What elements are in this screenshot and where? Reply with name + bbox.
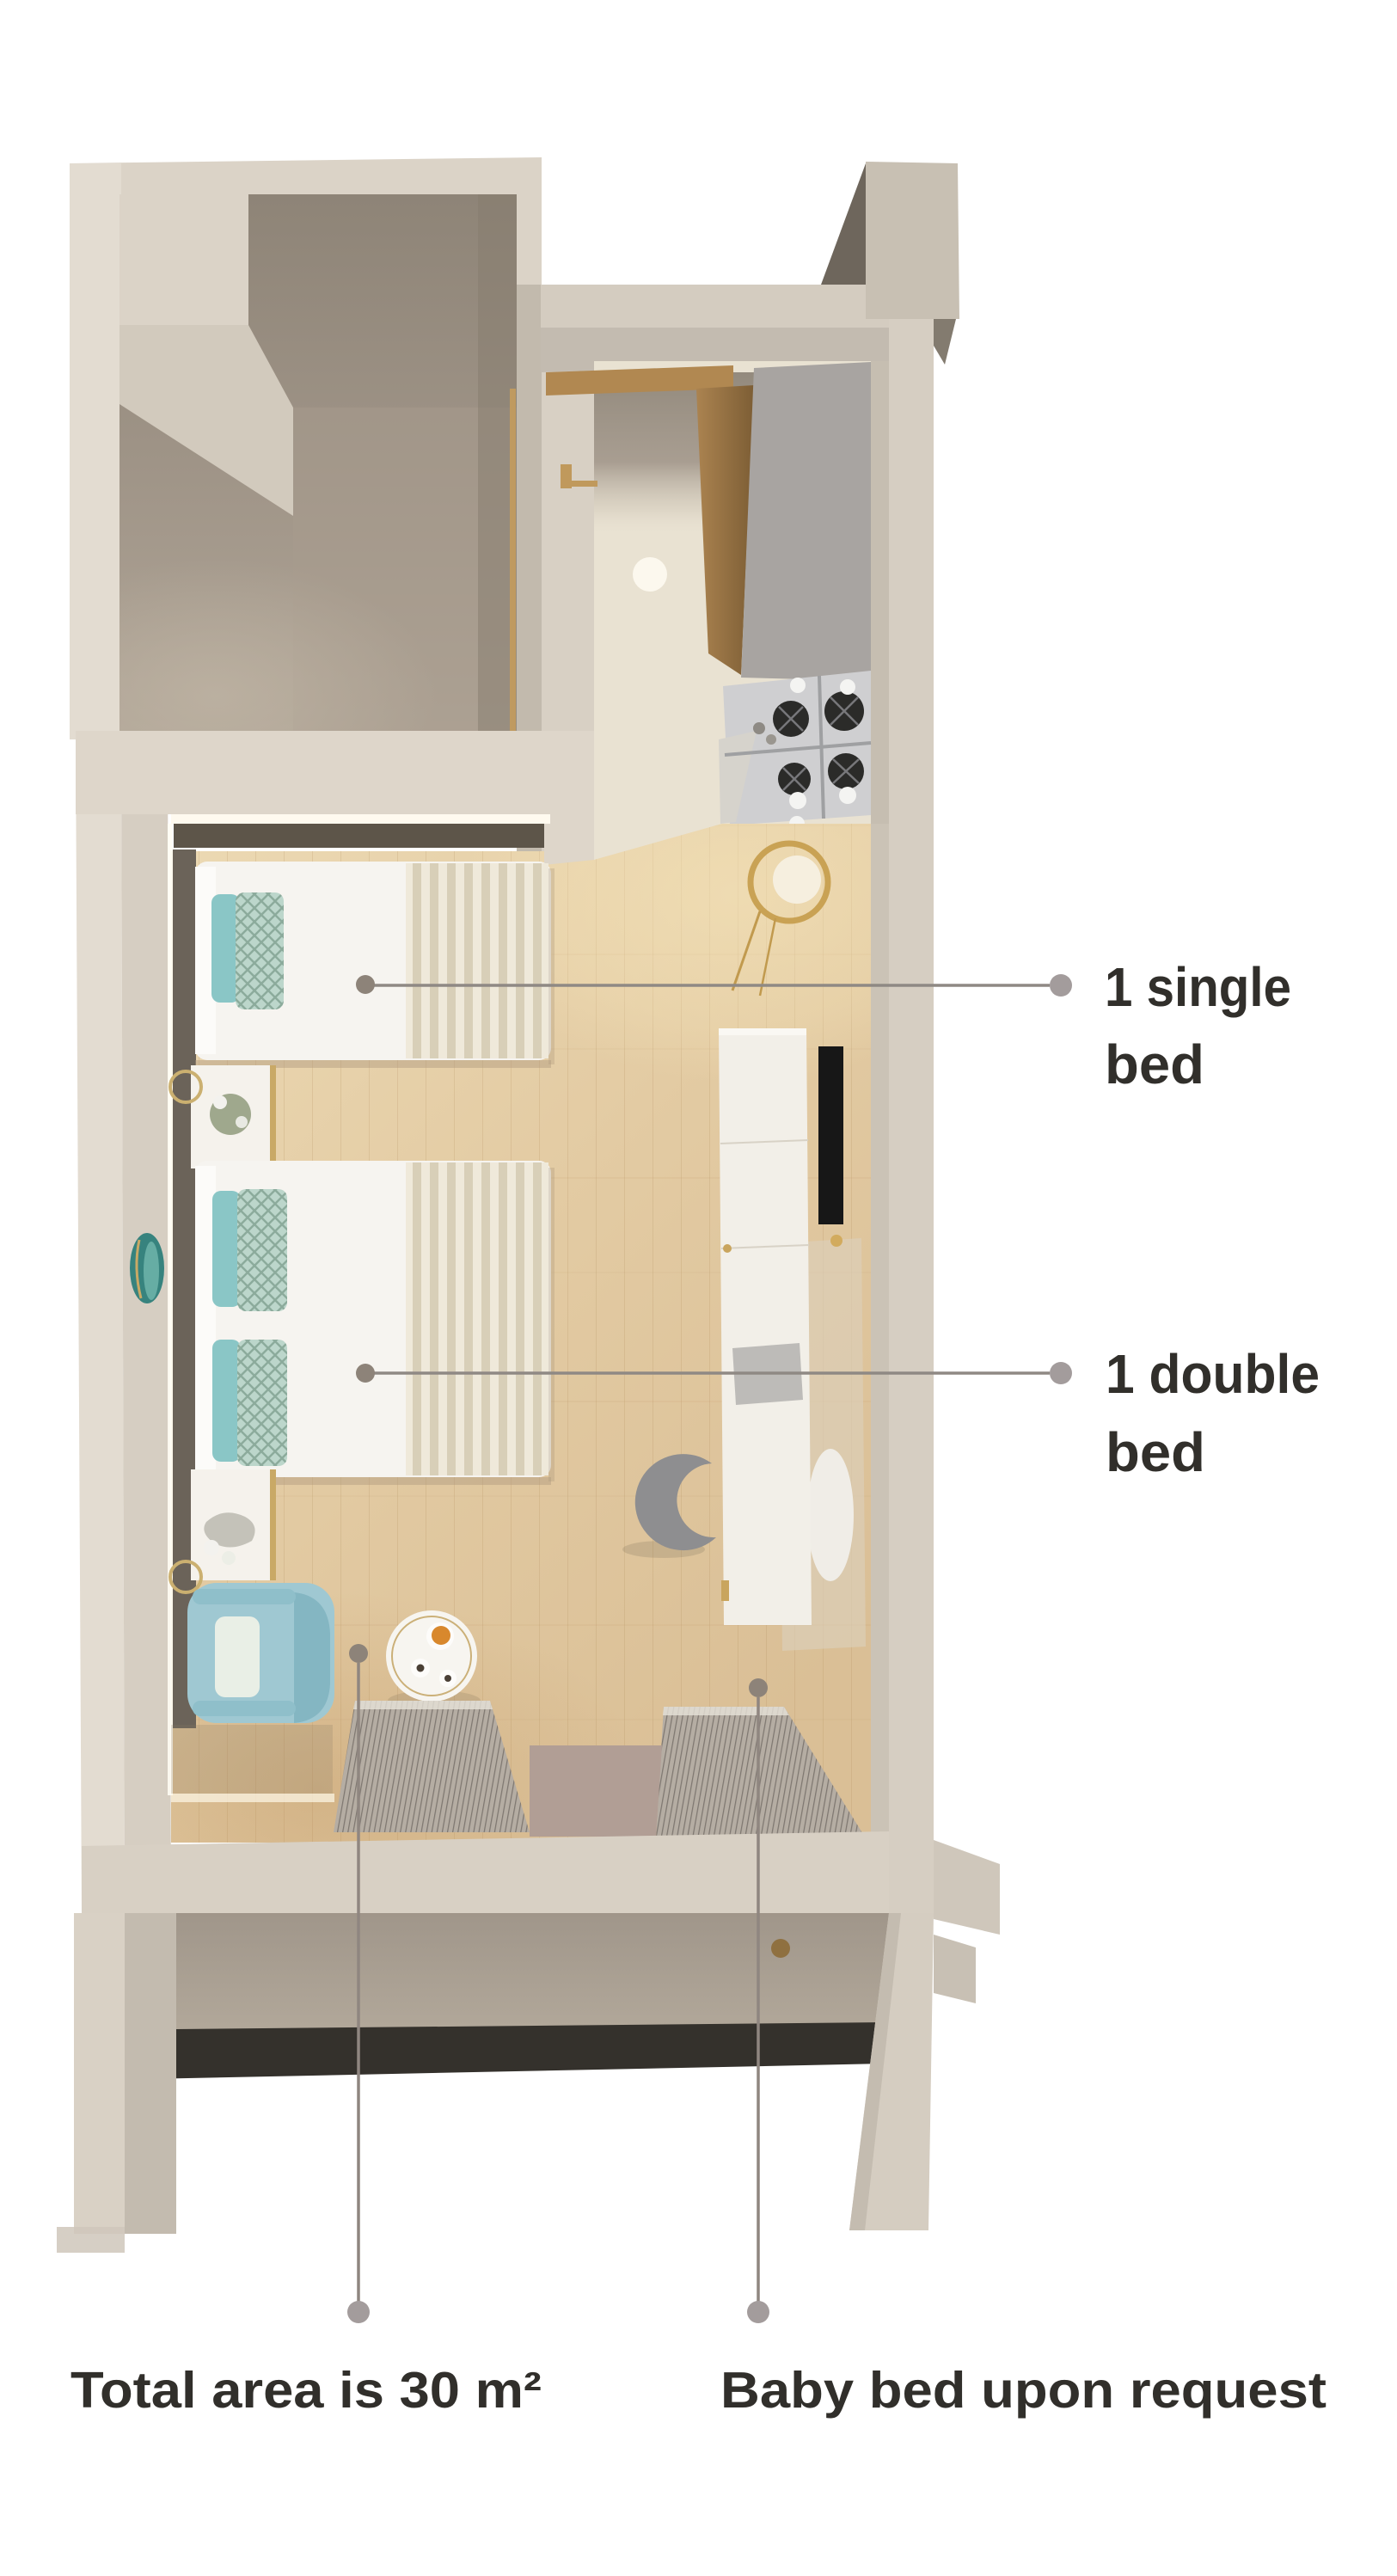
svg-text:bed: bed [1105,1033,1204,1095]
svg-text:bed: bed [1106,1421,1205,1483]
svg-text:1 double: 1 double [1106,1343,1320,1405]
svg-text:Baby bed upon request: Baby bed upon request [720,2362,1327,2419]
svg-text:1 single: 1 single [1105,956,1291,1018]
svg-text:Total area is 30 m²: Total area is 30 m² [70,2362,542,2419]
